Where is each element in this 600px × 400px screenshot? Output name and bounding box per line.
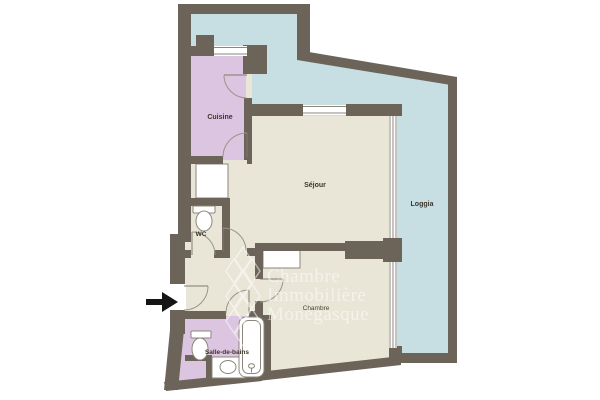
watermark-line-1: Chambre bbox=[267, 266, 340, 287]
floor-plan-page: Chambre Immobilière Monégasque Cuisine S… bbox=[0, 0, 600, 400]
room-label-loggia: Loggia bbox=[411, 201, 434, 208]
window-sejour-top bbox=[303, 105, 346, 115]
hall-closet bbox=[196, 164, 228, 198]
window-sejour-loggia bbox=[389, 116, 397, 238]
room-label-chambre: Chambre bbox=[303, 305, 330, 312]
room-cuisine-area bbox=[189, 47, 246, 160]
floor-plan-svg: Chambre Immobilière Monégasque Cuisine S… bbox=[0, 0, 600, 400]
room-label-cuisine: Cuisine bbox=[207, 114, 232, 121]
room-label-salle-de-bains: Salle-de-bains bbox=[205, 349, 249, 356]
room-label-sejour: Séjour bbox=[304, 182, 326, 189]
bathtub bbox=[239, 317, 264, 377]
room-label-wc: WC bbox=[196, 231, 207, 238]
window-cuisine-top bbox=[214, 46, 247, 56]
window-chambre-loggia bbox=[389, 262, 397, 348]
watermark-line-2: Immobilière bbox=[267, 285, 366, 306]
